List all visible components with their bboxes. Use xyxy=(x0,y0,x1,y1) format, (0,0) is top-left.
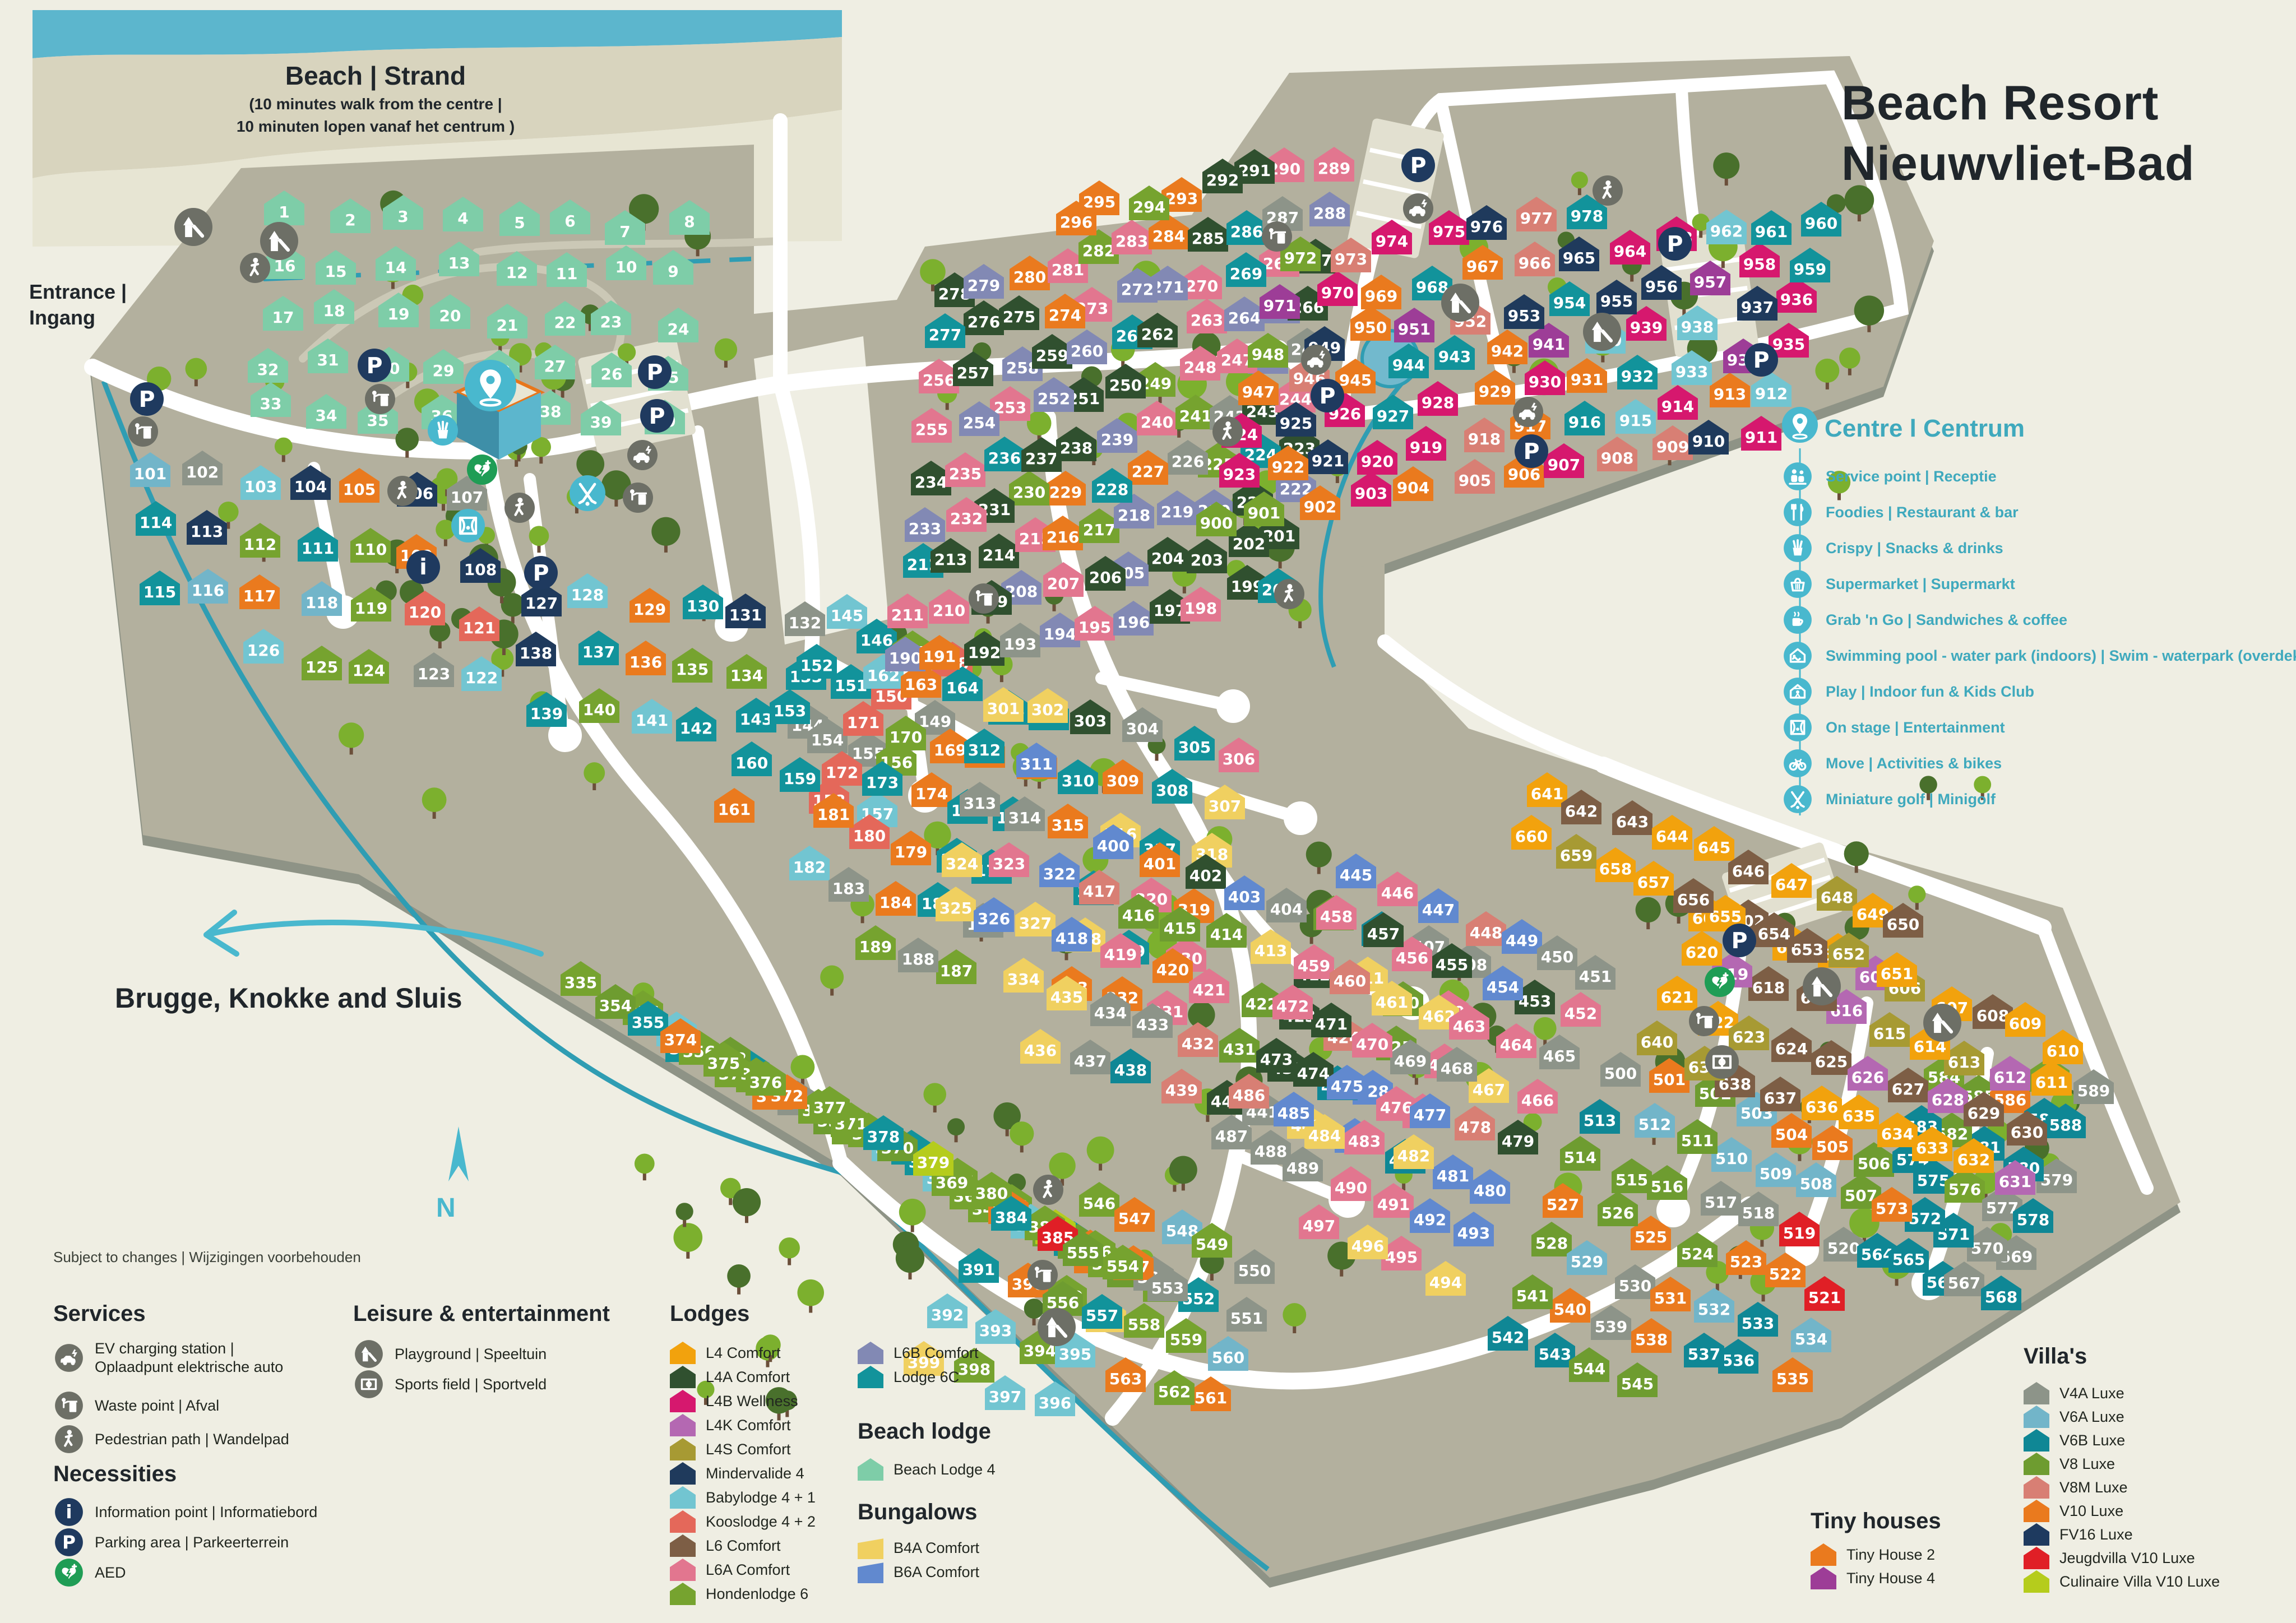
svg-text:909: 909 xyxy=(1656,438,1689,456)
svg-text:181: 181 xyxy=(817,805,850,824)
svg-text:945: 945 xyxy=(1339,371,1372,389)
walk-icon[interactable] xyxy=(1593,175,1623,206)
svg-text:P: P xyxy=(647,360,663,386)
legend-jeugd: Jeugdvilla V10 Luxe xyxy=(2024,1547,2195,1569)
svg-text:24: 24 xyxy=(668,320,689,338)
svg-text:937: 937 xyxy=(1741,298,1774,317)
coffee-icon xyxy=(1782,604,1813,636)
svg-text:570: 570 xyxy=(1971,1239,2003,1258)
svg-text:216: 216 xyxy=(1047,528,1079,546)
svg-text:369: 369 xyxy=(936,1174,968,1192)
svg-text:230: 230 xyxy=(1013,483,1045,502)
svg-text:962: 962 xyxy=(1710,222,1743,240)
svg-text:263: 263 xyxy=(1191,311,1223,330)
waste-icon[interactable] xyxy=(1689,1006,1719,1036)
svg-text:138: 138 xyxy=(520,644,552,662)
svg-text:112: 112 xyxy=(244,535,276,554)
legend-waste: Waste point | Afval xyxy=(53,1390,219,1421)
svg-text:516: 516 xyxy=(1651,1177,1683,1196)
svg-text:433: 433 xyxy=(1136,1015,1169,1034)
svg-text:21: 21 xyxy=(497,316,519,335)
svg-text:206: 206 xyxy=(1089,568,1122,587)
svg-text:455: 455 xyxy=(1436,956,1468,974)
svg-text:495: 495 xyxy=(1385,1248,1418,1267)
leisure-panel: Leisure & entertainment Playground | Spe… xyxy=(353,1301,610,1327)
svg-text:20: 20 xyxy=(439,307,461,325)
beach-lodge-swatch-icon xyxy=(858,1458,883,1481)
svg-text:966: 966 xyxy=(1519,254,1551,272)
playground-icon[interactable] xyxy=(1583,313,1621,351)
svg-text:652: 652 xyxy=(1832,945,1865,963)
svg-text:P: P xyxy=(1667,231,1683,257)
crispy-icon[interactable] xyxy=(428,415,458,446)
svg-text:2: 2 xyxy=(345,211,355,229)
svg-text:262: 262 xyxy=(1141,325,1174,344)
babylodge-swatch-icon xyxy=(670,1486,696,1509)
svg-text:198: 198 xyxy=(1184,599,1217,618)
entertainment-icon xyxy=(1782,712,1813,743)
parking-lot xyxy=(577,338,696,455)
svg-text:510: 510 xyxy=(1715,1149,1748,1168)
svg-text:286: 286 xyxy=(1230,222,1263,241)
walk-icon[interactable] xyxy=(240,253,270,283)
svg-text:226: 226 xyxy=(1172,452,1204,471)
legend-v10: V10 Luxe xyxy=(2024,1500,2123,1522)
svg-text:452: 452 xyxy=(1564,1004,1597,1023)
legend-ev: EV charging station |Oplaadpunt elektris… xyxy=(53,1339,283,1376)
svg-text:953: 953 xyxy=(1508,307,1540,325)
tree-icon xyxy=(779,1237,800,1265)
walk-icon[interactable] xyxy=(504,493,535,523)
svg-text:907: 907 xyxy=(1548,456,1580,474)
svg-text:915: 915 xyxy=(1619,411,1652,430)
svg-text:191: 191 xyxy=(923,647,956,666)
svg-text:643: 643 xyxy=(1616,813,1649,831)
svg-text:911: 911 xyxy=(1745,428,1777,447)
svg-text:303: 303 xyxy=(1074,712,1107,730)
parking-icon[interactable]: P xyxy=(524,556,558,590)
svg-text:576: 576 xyxy=(1948,1180,1981,1199)
jeugdvilla-swatch-icon xyxy=(2024,1547,2049,1569)
waste-icon[interactable] xyxy=(365,384,395,414)
centre-item-foodies: Foodies | Restaurant & bar xyxy=(1782,497,2019,528)
svg-text:6: 6 xyxy=(564,212,575,230)
house-marker[interactable]: 392 xyxy=(927,1293,968,1328)
svg-text:187: 187 xyxy=(940,962,973,980)
svg-text:P: P xyxy=(62,1532,76,1554)
svg-text:33: 33 xyxy=(260,395,282,413)
svg-text:526: 526 xyxy=(1601,1204,1634,1222)
walk-icon[interactable] xyxy=(1033,1175,1063,1205)
svg-text:918: 918 xyxy=(1468,430,1501,448)
svg-text:415: 415 xyxy=(1164,919,1196,938)
svg-text:161: 161 xyxy=(718,800,751,819)
svg-text:18: 18 xyxy=(323,302,345,320)
services-panel: Services EV charging station |Oplaadpunt… xyxy=(53,1301,146,1327)
svg-text:463: 463 xyxy=(1453,1017,1485,1036)
svg-text:554: 554 xyxy=(1107,1257,1139,1276)
playground-icon[interactable] xyxy=(1923,1004,1961,1042)
svg-text:527: 527 xyxy=(1547,1195,1579,1214)
info-icon[interactable]: i xyxy=(406,550,440,584)
svg-text:641: 641 xyxy=(1531,785,1563,803)
svg-text:567: 567 xyxy=(1948,1274,1980,1292)
svg-text:615: 615 xyxy=(1873,1024,1906,1043)
svg-text:31: 31 xyxy=(317,351,339,369)
svg-text:466: 466 xyxy=(1521,1091,1554,1110)
svg-text:954: 954 xyxy=(1553,294,1586,312)
svg-text:971: 971 xyxy=(1263,296,1296,315)
bungalows-title: Bungalows xyxy=(858,1500,977,1525)
playground-icon[interactable] xyxy=(260,222,298,260)
svg-text:514: 514 xyxy=(1564,1148,1596,1167)
svg-text:517: 517 xyxy=(1705,1193,1737,1212)
svg-text:493: 493 xyxy=(1457,1224,1490,1242)
svg-text:289: 289 xyxy=(1318,159,1350,178)
svg-text:457: 457 xyxy=(1367,925,1400,943)
svg-text:965: 965 xyxy=(1563,249,1595,267)
svg-text:454: 454 xyxy=(1487,978,1519,996)
ev-icon[interactable] xyxy=(627,440,658,470)
svg-text:905: 905 xyxy=(1459,471,1491,490)
svg-text:203: 203 xyxy=(1191,551,1223,569)
svg-text:119: 119 xyxy=(355,599,387,618)
walk-icon[interactable] xyxy=(1274,579,1304,609)
l4a-swatch-icon xyxy=(670,1366,696,1388)
svg-text:288: 288 xyxy=(1313,204,1346,222)
svg-text:238: 238 xyxy=(1060,439,1093,457)
svg-text:559: 559 xyxy=(1170,1330,1202,1349)
legend-l4b: L4B Wellness xyxy=(670,1390,798,1412)
legend-l6: L6 Comfort xyxy=(670,1534,781,1557)
svg-text:137: 137 xyxy=(582,643,615,661)
tree-icon xyxy=(797,1279,823,1313)
svg-text:315: 315 xyxy=(1052,816,1084,834)
page-title: Beach Resort Nieuwvliet-Bad xyxy=(1841,73,2195,194)
svg-text:139: 139 xyxy=(530,704,563,723)
svg-text:482: 482 xyxy=(1397,1147,1430,1165)
svg-text:335: 335 xyxy=(564,973,597,992)
svg-text:530: 530 xyxy=(1619,1277,1651,1295)
svg-text:15: 15 xyxy=(325,262,347,281)
svg-text:646: 646 xyxy=(1732,862,1765,880)
svg-text:644: 644 xyxy=(1656,827,1688,846)
svg-text:3: 3 xyxy=(397,207,408,226)
waste-icon[interactable] xyxy=(128,416,158,447)
svg-text:941: 941 xyxy=(1533,335,1565,354)
legend-v8: V8 Luxe xyxy=(2024,1453,2115,1475)
svg-text:976: 976 xyxy=(1470,217,1503,236)
l6a-swatch-icon xyxy=(670,1559,696,1581)
svg-text:196: 196 xyxy=(1117,613,1150,632)
parking-icon[interactable]: P xyxy=(1401,149,1435,182)
svg-text:505: 505 xyxy=(1816,1138,1849,1156)
waste-icon[interactable] xyxy=(623,483,653,513)
svg-text:322: 322 xyxy=(1043,865,1076,883)
svg-text:549: 549 xyxy=(1196,1235,1228,1254)
beach-lodge-title: Beach lodge xyxy=(858,1419,991,1444)
svg-text:269: 269 xyxy=(1230,265,1262,283)
svg-text:508: 508 xyxy=(1800,1175,1832,1193)
svg-text:532: 532 xyxy=(1698,1300,1730,1319)
svg-text:511: 511 xyxy=(1681,1132,1714,1150)
svg-text:127: 127 xyxy=(525,594,558,613)
svg-text:170: 170 xyxy=(890,728,922,746)
compass-label: N xyxy=(436,1193,456,1223)
svg-text:380: 380 xyxy=(975,1184,1008,1203)
svg-text:923: 923 xyxy=(1223,465,1256,484)
svg-text:519: 519 xyxy=(1783,1224,1816,1242)
svg-text:470: 470 xyxy=(1356,1035,1388,1054)
svg-text:655: 655 xyxy=(1709,907,1742,926)
svg-text:540: 540 xyxy=(1554,1300,1586,1319)
svg-text:545: 545 xyxy=(1621,1375,1654,1393)
svg-text:256: 256 xyxy=(923,371,955,389)
pin-icon[interactable] xyxy=(465,360,516,411)
svg-text:609: 609 xyxy=(2009,1014,2042,1033)
ev-icon[interactable] xyxy=(1513,397,1543,427)
svg-text:257: 257 xyxy=(957,364,989,382)
svg-text:117: 117 xyxy=(243,587,276,605)
centre-item-onstage: On stage | Entertainment xyxy=(1782,712,2005,743)
svg-text:325: 325 xyxy=(939,899,972,917)
svg-text:376: 376 xyxy=(749,1073,782,1092)
svg-text:154: 154 xyxy=(811,731,844,749)
svg-text:630: 630 xyxy=(2011,1123,2043,1142)
svg-text:473: 473 xyxy=(1260,1050,1293,1069)
svg-text:624: 624 xyxy=(1775,1040,1808,1058)
v10-swatch-icon xyxy=(2024,1500,2049,1522)
svg-text:173: 173 xyxy=(866,773,899,792)
walk-icon[interactable] xyxy=(387,476,418,506)
svg-text:210: 210 xyxy=(933,601,965,620)
svg-text:933: 933 xyxy=(1675,363,1708,381)
legend-playground: Playground | Speeltuin xyxy=(353,1338,547,1370)
direction-label: Brugge, Knokke and Sluis xyxy=(115,982,462,1014)
waste-icon[interactable] xyxy=(1262,221,1292,252)
svg-text:401: 401 xyxy=(1144,855,1176,873)
legend-l4s: L4S Comfort xyxy=(670,1438,791,1460)
onstage-icon[interactable] xyxy=(451,509,485,542)
svg-text:500: 500 xyxy=(1604,1064,1637,1083)
svg-text:38: 38 xyxy=(540,402,562,421)
svg-text:132: 132 xyxy=(789,614,821,632)
svg-text:936: 936 xyxy=(1780,290,1813,309)
playground-icon[interactable] xyxy=(1803,967,1841,1005)
svg-text:935: 935 xyxy=(1772,335,1805,354)
svg-text:486: 486 xyxy=(1233,1086,1265,1105)
svg-text:213: 213 xyxy=(934,550,967,569)
svg-text:908: 908 xyxy=(1601,449,1633,467)
svg-text:625: 625 xyxy=(1815,1052,1848,1071)
svg-text:131: 131 xyxy=(729,606,762,624)
waste-icon[interactable] xyxy=(1027,1260,1058,1290)
svg-text:642: 642 xyxy=(1565,802,1598,820)
walk-icon[interactable] xyxy=(1212,416,1243,447)
svg-text:240: 240 xyxy=(1141,413,1173,432)
centre-item-service: Service point | Receptie xyxy=(1782,461,1997,492)
ev-icon[interactable] xyxy=(1301,345,1331,375)
svg-text:396: 396 xyxy=(1039,1394,1071,1412)
svg-text:922: 922 xyxy=(1272,458,1304,476)
svg-text:485: 485 xyxy=(1277,1104,1310,1123)
v8m-swatch-icon xyxy=(2024,1476,2049,1499)
leisure-title: Leisure & entertainment xyxy=(353,1301,610,1327)
svg-text:323: 323 xyxy=(993,855,1025,873)
legend-hond: Hondenlodge 6 xyxy=(670,1583,808,1605)
waste-icon[interactable] xyxy=(969,583,999,614)
svg-text:929: 929 xyxy=(1479,382,1511,401)
centre-item-supermarket: Supermarket | Supermarkt xyxy=(1782,568,2015,600)
svg-text:1: 1 xyxy=(279,203,289,221)
svg-text:491: 491 xyxy=(1377,1195,1410,1214)
svg-text:957: 957 xyxy=(1694,273,1726,291)
svg-text:518: 518 xyxy=(1742,1204,1775,1222)
svg-text:974: 974 xyxy=(1376,232,1408,251)
b6a-swatch-icon xyxy=(858,1561,883,1583)
svg-text:393: 393 xyxy=(979,1321,1012,1340)
svg-text:403: 403 xyxy=(1228,888,1261,906)
svg-text:623: 623 xyxy=(1733,1028,1765,1046)
tiny-house-4-swatch-icon xyxy=(1811,1567,1836,1589)
playground-icon[interactable] xyxy=(174,208,212,246)
lodge6c-swatch-icon xyxy=(858,1366,883,1388)
svg-text:547: 547 xyxy=(1118,1209,1151,1228)
culinaire-swatch-icon xyxy=(2024,1570,2049,1593)
legend-l4k: L4K Comfort xyxy=(670,1414,791,1436)
svg-text:636: 636 xyxy=(1806,1098,1838,1116)
svg-text:326: 326 xyxy=(978,910,1010,928)
svg-text:555: 555 xyxy=(1067,1244,1099,1262)
svg-text:453: 453 xyxy=(1519,992,1551,1010)
svg-text:506: 506 xyxy=(1858,1154,1890,1173)
svg-text:620: 620 xyxy=(1686,943,1718,962)
legend-b4a: B4A Comfort xyxy=(858,1537,979,1559)
svg-text:126: 126 xyxy=(247,641,280,660)
parking-icon[interactable]: P xyxy=(1744,343,1778,377)
svg-text:476: 476 xyxy=(1380,1098,1413,1117)
svg-text:416: 416 xyxy=(1122,906,1155,925)
svg-text:910: 910 xyxy=(1692,432,1725,451)
sports-field-icon xyxy=(353,1369,385,1400)
aed-icon[interactable] xyxy=(1705,967,1735,997)
svg-text:538: 538 xyxy=(1635,1330,1668,1349)
parking-icon[interactable]: P xyxy=(130,382,164,416)
svg-text:235: 235 xyxy=(949,465,982,483)
svg-text:465: 465 xyxy=(1543,1047,1576,1065)
svg-text:621: 621 xyxy=(1661,988,1693,1007)
svg-text:146: 146 xyxy=(860,631,893,650)
svg-text:284: 284 xyxy=(1152,227,1185,245)
minigolf-icon[interactable] xyxy=(570,475,605,511)
svg-text:314: 314 xyxy=(1008,809,1041,827)
ev-icon[interactable] xyxy=(1403,193,1433,224)
svg-text:513: 513 xyxy=(1584,1111,1616,1130)
svg-text:544: 544 xyxy=(1573,1360,1605,1378)
svg-text:535: 535 xyxy=(1776,1370,1809,1388)
svg-text:134: 134 xyxy=(730,666,763,685)
svg-text:436: 436 xyxy=(1024,1041,1057,1060)
svg-text:419: 419 xyxy=(1104,945,1137,964)
svg-text:490: 490 xyxy=(1335,1179,1367,1197)
svg-text:291: 291 xyxy=(1238,161,1271,180)
svg-text:449: 449 xyxy=(1506,931,1538,950)
l4-swatch-icon xyxy=(670,1342,696,1364)
parking-icon[interactable]: P xyxy=(1311,379,1344,412)
svg-text:553: 553 xyxy=(1151,1279,1184,1297)
svg-text:114: 114 xyxy=(140,513,172,532)
svg-text:227: 227 xyxy=(1132,462,1164,481)
playground-icon[interactable] xyxy=(1038,1308,1076,1346)
svg-text:521: 521 xyxy=(1808,1288,1841,1307)
svg-text:528: 528 xyxy=(1535,1234,1568,1253)
legend-sportsfield: Sports field | Sportveld xyxy=(353,1369,547,1400)
svg-text:248: 248 xyxy=(1184,358,1216,377)
sports-icon[interactable] xyxy=(1705,1045,1739,1079)
svg-text:123: 123 xyxy=(418,665,450,683)
v8-swatch-icon xyxy=(2024,1453,2049,1475)
svg-text:943: 943 xyxy=(1438,347,1471,366)
svg-text:234: 234 xyxy=(915,473,947,491)
svg-text:654: 654 xyxy=(1758,925,1790,943)
parking-icon[interactable]: P xyxy=(638,355,672,389)
svg-text:640: 640 xyxy=(1641,1033,1673,1051)
playground-icon[interactable] xyxy=(1441,284,1479,322)
title-line2: Nieuwvliet-Bad xyxy=(1841,133,2195,194)
svg-text:557: 557 xyxy=(1086,1306,1118,1325)
svg-text:276: 276 xyxy=(968,313,1000,331)
parking-icon[interactable]: P xyxy=(1658,227,1692,261)
kooslodge-swatch-icon xyxy=(670,1510,696,1533)
svg-text:960: 960 xyxy=(1805,214,1837,233)
svg-text:488: 488 xyxy=(1255,1142,1287,1161)
svg-text:375: 375 xyxy=(707,1054,740,1073)
svg-text:446: 446 xyxy=(1381,884,1414,902)
entrance-line2: Ingang xyxy=(29,305,164,331)
svg-text:P: P xyxy=(1320,383,1336,409)
svg-text:483: 483 xyxy=(1348,1132,1381,1151)
parking-icon[interactable]: P xyxy=(1723,924,1756,957)
svg-text:947: 947 xyxy=(1242,383,1275,401)
parking-icon[interactable]: P xyxy=(1515,434,1548,468)
svg-text:469: 469 xyxy=(1394,1052,1427,1070)
services-title: Services xyxy=(53,1301,146,1327)
aed-icon[interactable] xyxy=(467,455,497,485)
svg-text:477: 477 xyxy=(1414,1106,1446,1124)
centre-item-grabngo: Grab 'n Go | Sandwiches & coffee xyxy=(1782,604,2067,636)
svg-text:913: 913 xyxy=(1714,385,1746,404)
legend-v6b: V6B Luxe xyxy=(2024,1429,2125,1452)
svg-text:241: 241 xyxy=(1179,407,1212,425)
svg-text:468: 468 xyxy=(1441,1059,1473,1078)
svg-text:489: 489 xyxy=(1286,1159,1319,1177)
svg-text:432: 432 xyxy=(1182,1035,1214,1053)
svg-text:961: 961 xyxy=(1755,222,1788,241)
svg-text:172: 172 xyxy=(826,763,858,782)
l4k-swatch-icon xyxy=(670,1414,696,1436)
parking-icon[interactable]: P xyxy=(640,399,674,433)
svg-text:190: 190 xyxy=(889,649,922,667)
svg-text:272: 272 xyxy=(1121,280,1154,299)
svg-text:P: P xyxy=(139,387,155,412)
ev-charging-icon xyxy=(53,1342,85,1374)
svg-text:537: 537 xyxy=(1688,1345,1720,1364)
svg-text:P: P xyxy=(1410,153,1427,179)
v6a-swatch-icon xyxy=(2024,1406,2049,1428)
svg-text:102: 102 xyxy=(186,463,219,481)
svg-text:159: 159 xyxy=(784,769,816,788)
parking-icon[interactable]: P xyxy=(358,349,391,382)
